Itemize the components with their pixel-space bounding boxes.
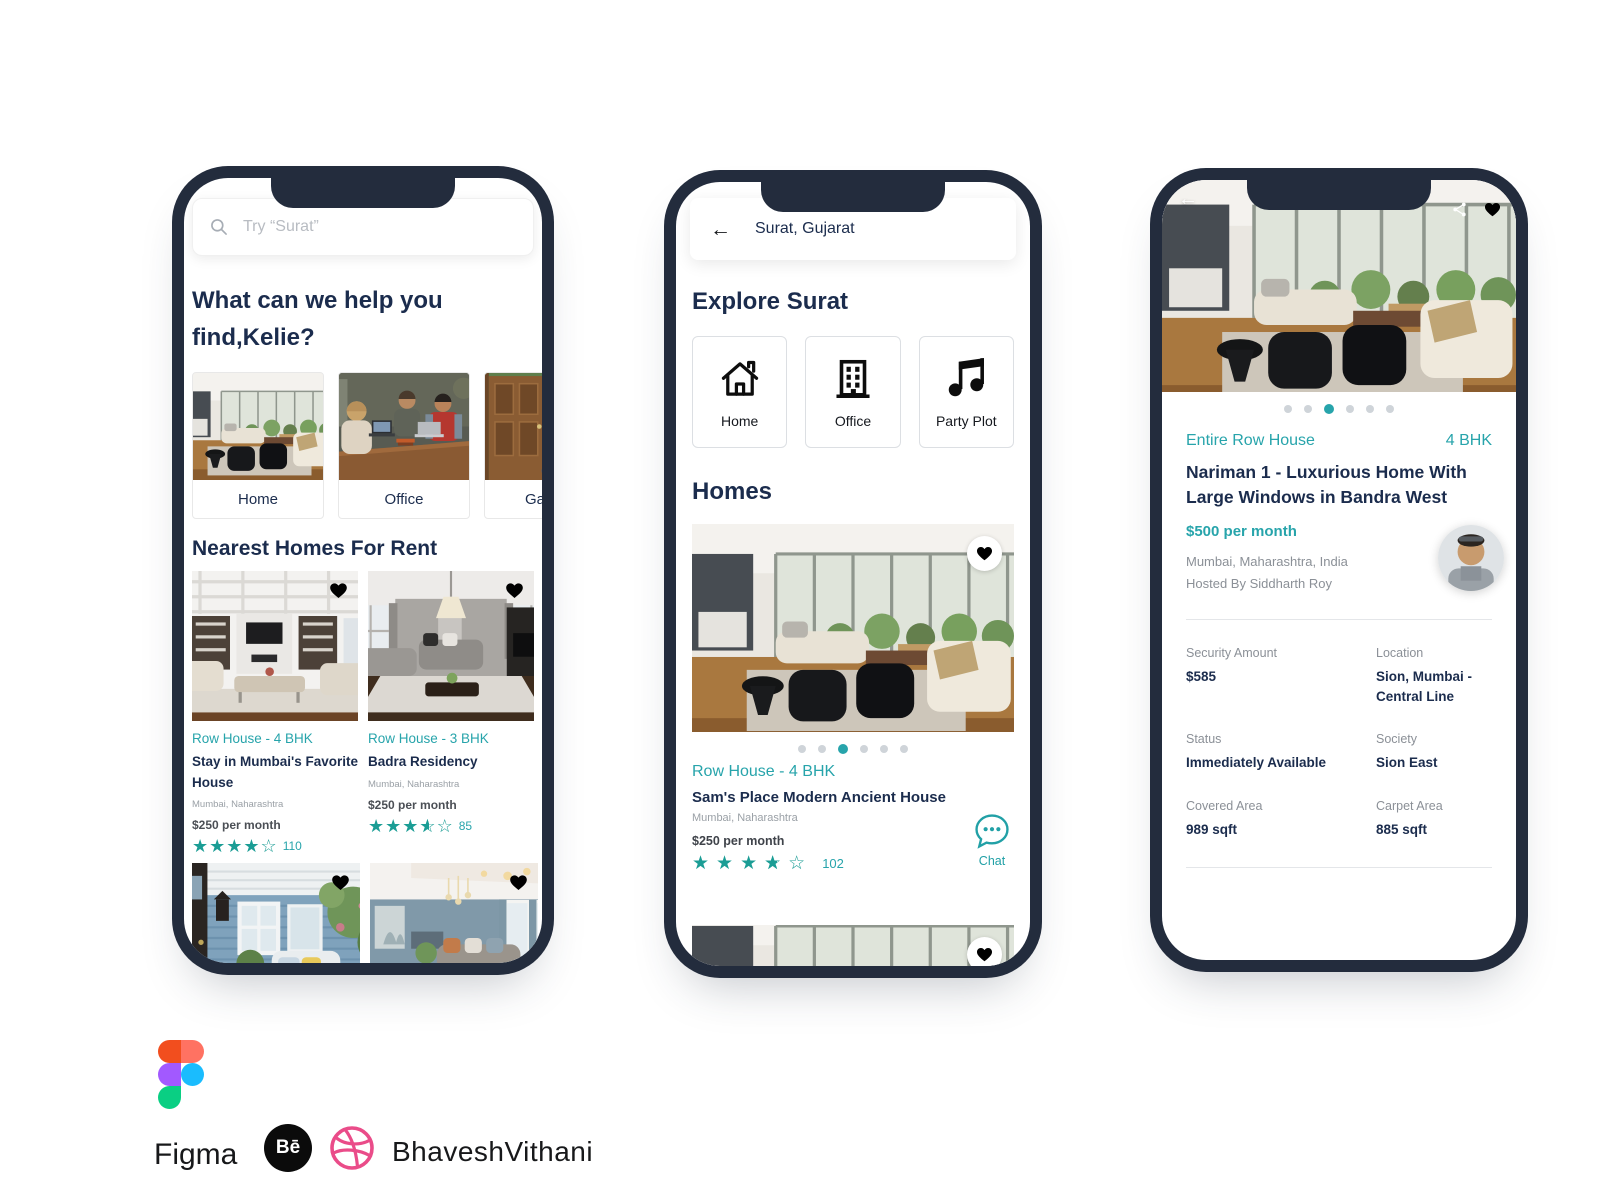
rating-count: 110	[283, 839, 302, 853]
figma-logo-piece	[158, 1086, 181, 1109]
listing-photo	[368, 571, 534, 721]
listing-title: Sam's Place Modern Ancient House	[692, 789, 1014, 806]
category-box-party-plot[interactable]: Party Plot	[919, 336, 1014, 448]
detail-label: Carpet Area	[1376, 799, 1492, 813]
chat-bubble-icon	[972, 811, 1012, 851]
listing-location: Mumbai, Naharashtra	[192, 799, 358, 810]
carousel-dot-active[interactable]	[838, 744, 848, 754]
carousel-dots[interactable]	[676, 744, 1030, 754]
category-card-garden[interactable]: Garden	[484, 372, 542, 519]
favorite-heart-icon[interactable]	[328, 580, 349, 601]
star-outline-icon: ☆	[788, 854, 812, 873]
search-icon	[209, 217, 229, 237]
carousel-dot[interactable]	[1304, 405, 1312, 413]
listing-price: $250 per month	[368, 798, 534, 812]
divider	[1186, 867, 1492, 868]
listing-photo[interactable]	[370, 863, 538, 963]
carousel-dot-active[interactable]	[1324, 404, 1334, 414]
location-text: Surat, Gujarat	[755, 220, 855, 238]
listing-title: Stay in Mumbai's Favorite House	[192, 752, 358, 793]
page-title: Explore Surat	[692, 288, 1014, 316]
category-carousel: Home Office Garden	[192, 372, 542, 519]
back-arrow-icon[interactable]: ←	[710, 219, 731, 240]
carousel-dot[interactable]	[1346, 405, 1354, 413]
listing-photo-image	[692, 925, 1014, 966]
rating: ★★★☆★☆ 102	[692, 854, 1014, 873]
phone-mockup-home: Try “Surat” What can we help you find,Ke…	[172, 166, 554, 975]
notch	[761, 182, 945, 212]
carousel-dot[interactable]	[1366, 405, 1374, 413]
figma-logo-piece	[158, 1063, 181, 1086]
home-icon	[717, 356, 763, 402]
star-icon: ★★★	[692, 854, 764, 873]
category-label: Home	[193, 480, 323, 518]
detail-item: Covered Area 989 sqft	[1186, 799, 1376, 840]
detail-label: Covered Area	[1186, 799, 1376, 813]
carousel-dot[interactable]	[1284, 405, 1292, 413]
star-outline-icon: ☆	[437, 817, 454, 835]
rating: ★★★★☆ 110	[192, 837, 358, 855]
listing-location: Mumbai, Naharashtra	[368, 779, 534, 790]
category-boxes: Home Office	[692, 336, 1014, 448]
property-type-row: Entire Row House 4 BHK	[1186, 432, 1492, 450]
listing-category: Row House - 3 BHK	[368, 731, 534, 746]
next-listing-photo[interactable]	[692, 925, 1014, 966]
favorite-button-active[interactable]	[967, 937, 1002, 966]
detail-label: Security Amount	[1186, 646, 1376, 660]
carousel-dot[interactable]	[798, 745, 806, 753]
phone-mockup-detail: ← Entire Row House 4 BH	[1150, 168, 1528, 972]
rating-count: 85	[459, 819, 472, 833]
detail-label: Location	[1376, 646, 1492, 660]
author-name: BhaveshVithani	[392, 1136, 593, 1168]
carousel-dot[interactable]	[880, 745, 888, 753]
listing-category: Row House - 4 BHK	[692, 763, 1014, 781]
figma-logo-piece	[158, 1040, 181, 1063]
carousel-dot[interactable]	[860, 745, 868, 753]
detail-item: Status Immediately Available	[1186, 732, 1376, 773]
detail-value: $585	[1186, 667, 1376, 687]
office-building-icon	[830, 356, 876, 402]
divider	[1186, 619, 1492, 620]
listing-photo[interactable]	[192, 863, 360, 963]
bhk-badge: 4 BHK	[1446, 432, 1492, 450]
home-category-photo	[193, 373, 323, 480]
figma-label: Figma	[154, 1138, 237, 1172]
heart-filled-icon	[975, 945, 994, 964]
favorite-heart-icon[interactable]	[330, 872, 351, 893]
detail-item: Society Sion East	[1376, 732, 1492, 773]
host-avatar[interactable]	[1438, 525, 1504, 591]
figma-logo-piece	[181, 1063, 204, 1086]
category-box-label: Home	[721, 413, 758, 429]
host-avatar-image	[1438, 525, 1504, 591]
hero-actions	[1451, 200, 1502, 219]
category-card-home[interactable]: Home	[192, 372, 324, 519]
listing-photo-image	[692, 524, 1014, 732]
search-placeholder: Try “Surat”	[243, 218, 319, 236]
detail-screen: ← Entire Row House 4 BH	[1162, 180, 1516, 960]
listing-grid: Row House - 4 BHK Stay in Mumbai's Favor…	[192, 571, 534, 855]
chat-label: Chat	[972, 854, 1012, 868]
category-label: Garden	[485, 480, 542, 518]
star-icon: ★★★★	[192, 837, 261, 855]
featured-listing-info[interactable]: Row House - 4 BHK Sam's Place Modern Anc…	[676, 763, 1030, 873]
detail-value: 989 sqft	[1186, 820, 1376, 840]
back-arrow-icon[interactable]: ←	[1178, 188, 1198, 211]
property-details-grid: Security Amount $585 Location Sion, Mumb…	[1186, 646, 1492, 839]
star-outline-icon: ☆	[261, 837, 278, 855]
notch	[1247, 180, 1431, 210]
category-box-home[interactable]: Home	[692, 336, 787, 448]
category-label: Office	[339, 480, 469, 518]
explore-screen: ← Surat, Gujarat Explore Surat Home	[676, 182, 1030, 966]
listing-price: $250 per month	[692, 834, 1014, 848]
property-hero-photo[interactable]: ←	[1162, 180, 1516, 392]
figma-logo[interactable]	[158, 1040, 204, 1109]
detail-item: Security Amount $585	[1186, 646, 1376, 706]
home-screen: Try “Surat” What can we help you find,Ke…	[184, 178, 542, 963]
listing-card[interactable]: Row House - 4 BHK Stay in Mumbai's Favor…	[192, 571, 358, 855]
figma-logo-piece	[181, 1040, 204, 1063]
music-note-icon	[943, 356, 989, 402]
phone-mockup-explore: ← Surat, Gujarat Explore Surat Home	[664, 170, 1042, 978]
carousel-dot[interactable]	[818, 745, 826, 753]
notch	[271, 178, 455, 208]
favorite-button[interactable]	[967, 536, 1002, 571]
carousel-dot[interactable]	[1386, 405, 1394, 413]
listing-photo	[192, 571, 358, 721]
category-box-label: Office	[835, 413, 871, 429]
detail-value: 885 sqft	[1376, 820, 1492, 840]
listing-title: Badra Residency	[368, 752, 534, 772]
category-box-label: Party Plot	[936, 413, 997, 429]
listing-price: $250 per month	[192, 818, 358, 832]
property-title: Nariman 1 - Luxurious Home With Large Wi…	[1186, 460, 1492, 509]
section-title-nearest-homes: Nearest Homes For Rent	[192, 537, 534, 561]
garden-category-photo	[485, 373, 542, 480]
favorite-heart-icon[interactable]	[1483, 200, 1502, 219]
listing-card[interactable]: Row House - 3 BHK Badra Residency Mumbai…	[368, 571, 534, 855]
carousel-dot[interactable]	[900, 745, 908, 753]
detail-value: Sion East	[1376, 753, 1492, 773]
detail-item: Carpet Area 885 sqft	[1376, 799, 1492, 840]
page-title: What can we help you find,Kelie?	[192, 282, 492, 356]
featured-listing-photo[interactable]	[692, 524, 1014, 732]
listing-grid-row-2	[192, 863, 534, 963]
favorite-heart-icon[interactable]	[504, 580, 525, 601]
detail-item: Location Sion, Mumbai - Central Line	[1376, 646, 1492, 706]
office-category-photo	[339, 373, 469, 480]
chat-button[interactable]: Chat	[972, 811, 1012, 868]
category-card-office[interactable]: Office	[338, 372, 470, 519]
design-canvas: Try “Surat” What can we help you find,Ke…	[0, 0, 1600, 1200]
detail-value: Immediately Available	[1186, 753, 1376, 773]
share-icon[interactable]	[1451, 201, 1468, 218]
section-title-homes: Homes	[692, 478, 1014, 506]
star-icon: ★★★	[368, 817, 419, 835]
detail-label: Status	[1186, 732, 1376, 746]
rating-count: 102	[822, 856, 844, 871]
behance-logo[interactable]: Bē	[264, 1124, 312, 1172]
star-half-icon: ★	[419, 817, 428, 835]
star-half-icon: ★	[764, 854, 777, 873]
property-type: Entire Row House	[1186, 432, 1315, 450]
carousel-dots[interactable]	[1162, 404, 1516, 414]
favorite-heart-icon[interactable]	[508, 872, 529, 893]
heart-outline-icon	[975, 544, 994, 563]
rating: ★★★☆★☆ 85	[368, 817, 534, 836]
detail-value: Sion, Mumbai - Central Line	[1376, 667, 1492, 706]
listing-location: Mumbai, Naharashtra	[692, 812, 1014, 824]
dribbble-logo[interactable]	[328, 1124, 376, 1172]
category-box-office[interactable]: Office	[805, 336, 900, 448]
detail-label: Society	[1376, 732, 1492, 746]
listing-category: Row House - 4 BHK	[192, 731, 358, 746]
